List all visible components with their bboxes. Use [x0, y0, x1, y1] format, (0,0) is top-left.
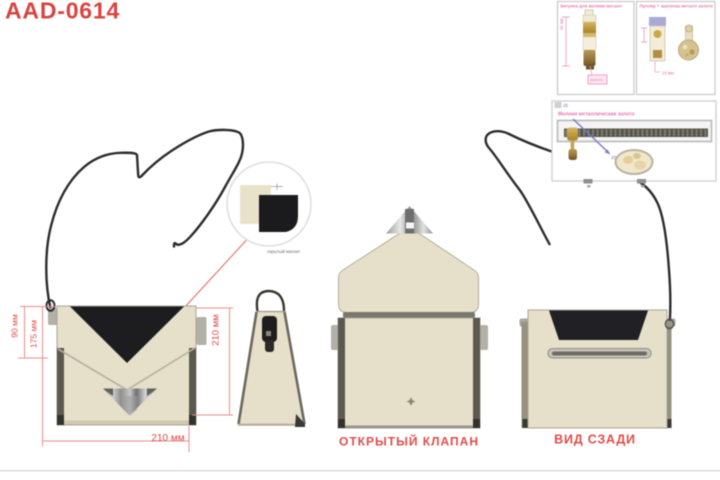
svg-text:золото: золото: [590, 77, 603, 82]
svg-text:90 мм: 90 мм: [10, 314, 20, 338]
svg-text:175 мм: 175 мм: [29, 320, 39, 348]
svg-text:45 мм: 45 мм: [559, 18, 564, 30]
svg-text:Бегунок для молнии металл: Бегунок для молнии металл: [561, 4, 623, 9]
svg-text:210 мм: 210 мм: [151, 433, 184, 444]
svg-text:ОТКРЫТЫЙ КЛАПАН: ОТКРЫТЫЙ КЛАПАН: [339, 434, 479, 449]
svg-text:16 мм: 16 мм: [662, 71, 674, 76]
svg-text:210 мм: 210 мм: [211, 314, 222, 346]
svg-text:ВИД СЗАДИ: ВИД СЗАДИ: [554, 433, 636, 447]
svg-text:Пуллер + заклепка металл золот: Пуллер + заклепка металл золото: [640, 4, 714, 9]
svg-text:25: 25: [563, 103, 569, 108]
svg-text:Молния металлическая золото: Молния металлическая золото: [558, 112, 635, 118]
svg-text:скрытый магнит: скрытый магнит: [267, 248, 300, 254]
svg-text:AAD-0614: AAD-0614: [5, 0, 120, 24]
